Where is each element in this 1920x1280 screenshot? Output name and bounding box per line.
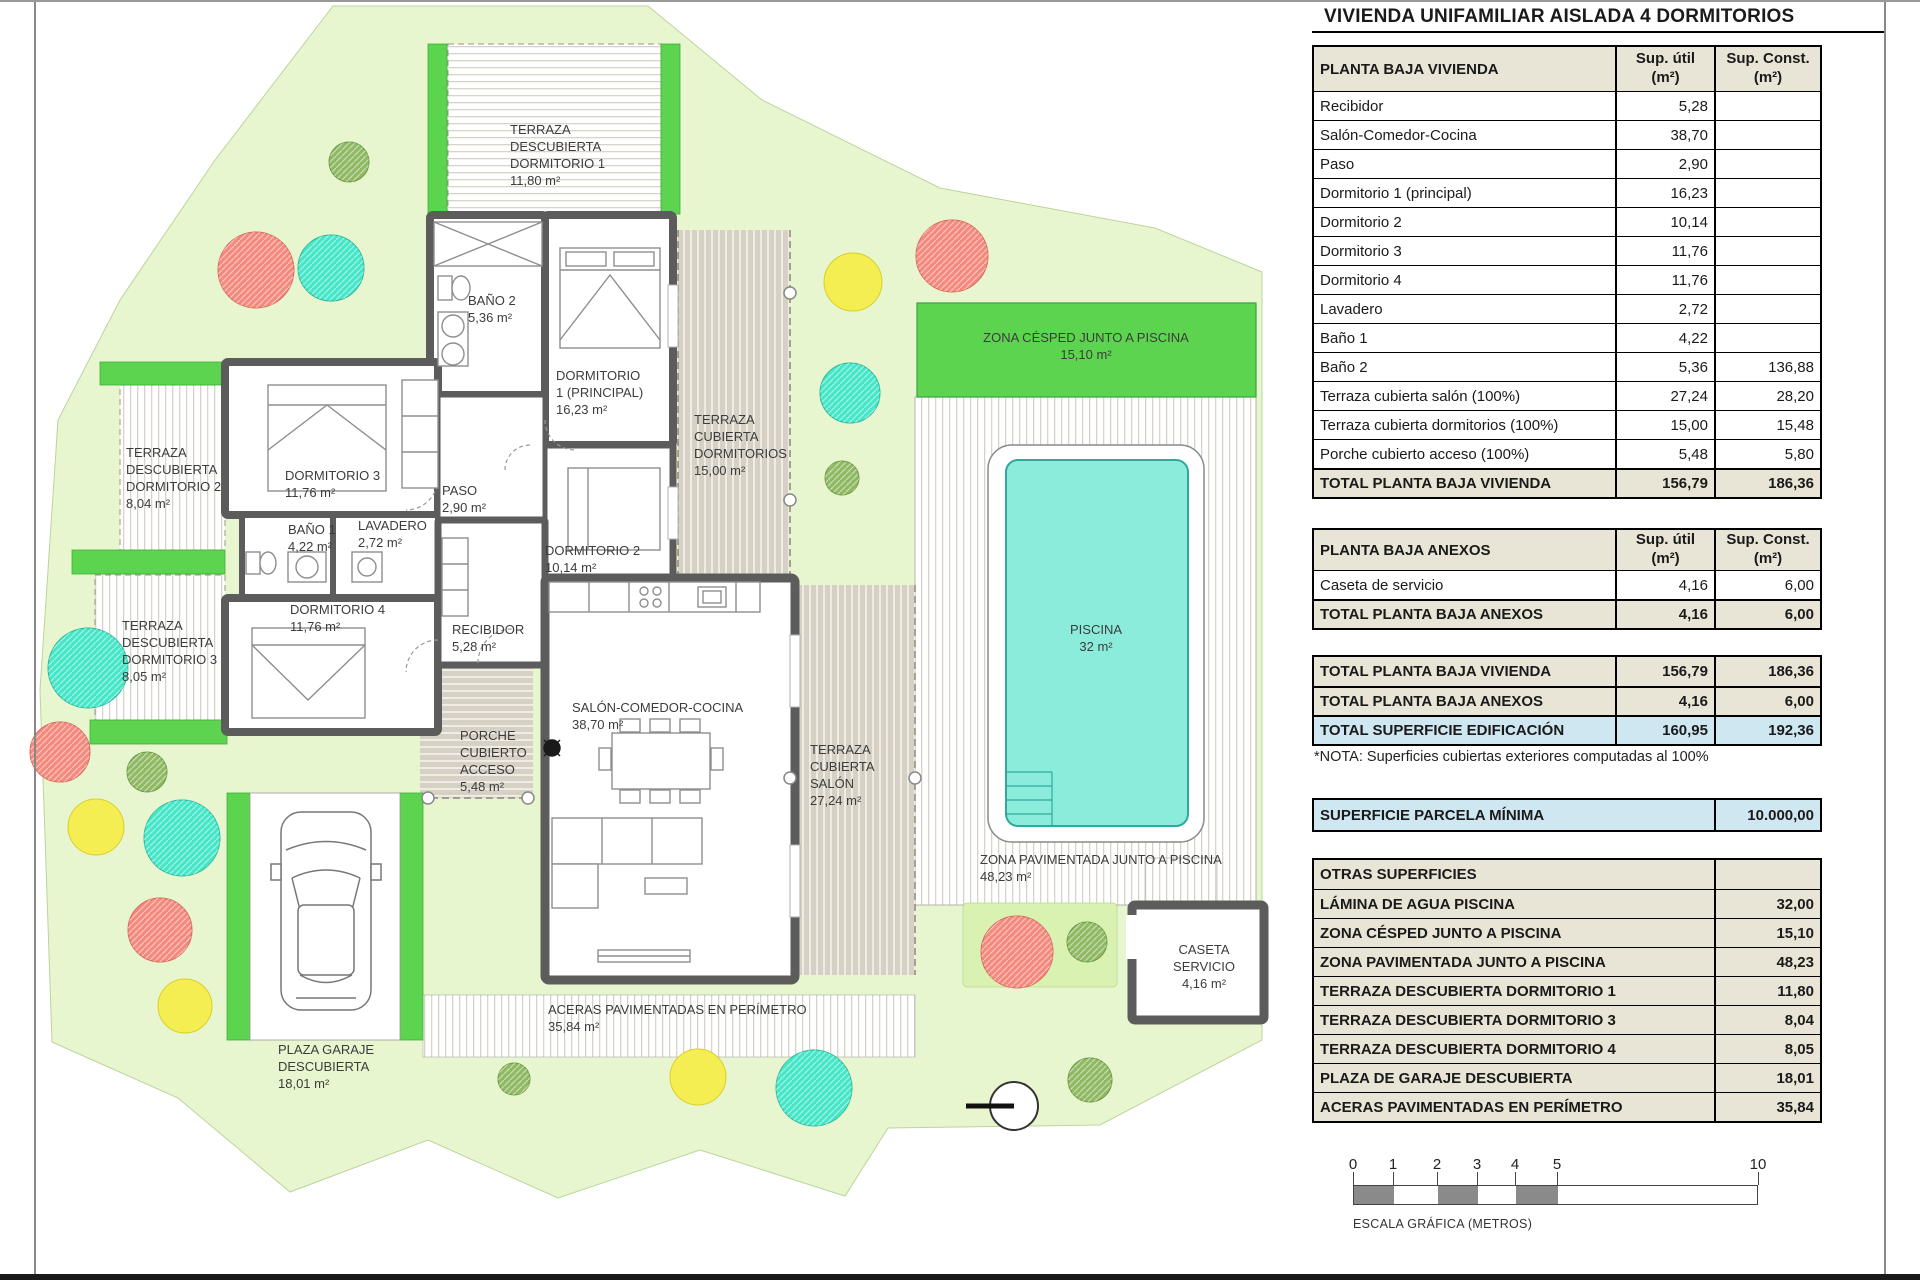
tree-olive-icon bbox=[1068, 1058, 1112, 1102]
table-row: Paso2,90 bbox=[1314, 149, 1820, 178]
table-header-row: PLANTA BAJA ANEXOS Sup. útil(m²) Sup. Co… bbox=[1314, 530, 1820, 570]
label-bano1: BAÑO 14,22 m² bbox=[288, 522, 336, 556]
table-row: SUPERFICIE PARCELA MÍNIMA 10.000,00 bbox=[1314, 800, 1820, 830]
tree-salmon-icon bbox=[128, 898, 192, 962]
table-total-row: TOTAL PLANTA BAJA VIVIENDA156,79186,36 bbox=[1314, 468, 1820, 497]
table-parcela-minima: SUPERFICIE PARCELA MÍNIMA 10.000,00 bbox=[1312, 798, 1822, 832]
label-terraza-dorm2: TERRAZADESCUBIERTADORMITORIO 28,04 m² bbox=[126, 445, 221, 513]
scale-caption: ESCALA GRÁFICA (METROS) bbox=[1353, 1217, 1532, 1231]
tree-olive-icon bbox=[498, 1063, 530, 1095]
scale-tick: 2 bbox=[1422, 1156, 1452, 1173]
scale-bar-segments bbox=[1353, 1185, 1758, 1205]
tree-salmon-icon bbox=[981, 916, 1053, 988]
wardrobe bbox=[402, 380, 438, 488]
table-row: ZONA CÉSPED JUNTO A PISCINA15,10 bbox=[1314, 918, 1820, 947]
label-piscina: PISCINA32 m² bbox=[1026, 622, 1166, 656]
tree-yellow-icon bbox=[670, 1049, 726, 1105]
footnote: *NOTA: Superficies cubiertas exteriores … bbox=[1314, 749, 1709, 765]
tree-salmon-icon bbox=[916, 220, 988, 292]
tree-salmon-icon bbox=[30, 722, 90, 782]
table-row: Salón-Comedor-Cocina38,70 bbox=[1314, 120, 1820, 149]
table-total-row: TOTAL PLANTA BAJA VIVIENDA156,79186,36 bbox=[1314, 657, 1820, 686]
label-zona-pavimentada: ZONA PAVIMENTADA JUNTO A PISCINA48,23 m² bbox=[980, 852, 1222, 886]
scale-tick: 5 bbox=[1542, 1156, 1572, 1173]
label-aceras: ACERAS PAVIMENTADAS EN PERÍMETRO35,84 m² bbox=[548, 1002, 807, 1036]
table-total-row: TOTAL PLANTA BAJA ANEXOS4,166,00 bbox=[1314, 599, 1820, 628]
architectural-sheet: TERRAZADESCUBIERTADORMITORIO 111,80 m² T… bbox=[0, 0, 1920, 1280]
table-row: TERRAZA DESCUBIERTA DORMITORIO 111,80 bbox=[1314, 976, 1820, 1005]
tree-olive-icon bbox=[1067, 922, 1107, 962]
closet bbox=[442, 538, 468, 616]
tree-salmon-icon bbox=[218, 232, 294, 308]
wardrobe bbox=[434, 222, 542, 266]
table-header-row: OTRAS SUPERFICIES bbox=[1314, 860, 1820, 889]
table-row: Dormitorio 311,76 bbox=[1314, 236, 1820, 265]
table-row: ACERAS PAVIMENTADAS EN PERÍMETRO35,84 bbox=[1314, 1092, 1820, 1121]
label-recibidor: RECIBIDOR5,28 m² bbox=[452, 622, 524, 656]
table-row: Dormitorio 1 (principal)16,23 bbox=[1314, 178, 1820, 207]
table-otras-superficies: OTRAS SUPERFICIES LÁMINA DE AGUA PISCINA… bbox=[1312, 858, 1822, 1123]
tree-teal-icon bbox=[820, 363, 880, 423]
tree-teal-icon bbox=[144, 800, 220, 876]
label-dorm1: DORMITORIO1 (PRINCIPAL)16,23 m² bbox=[556, 368, 643, 419]
tree-yellow-icon bbox=[824, 253, 882, 311]
table-resumen: TOTAL PLANTA BAJA VIVIENDA156,79186,36 T… bbox=[1312, 655, 1822, 746]
tree-yellow-icon bbox=[158, 979, 212, 1033]
label-zona-cesped: ZONA CÉSPED JUNTO A PISCINA15,10 m² bbox=[956, 330, 1216, 364]
table-row: PLAZA DE GARAJE DESCUBIERTA18,01 bbox=[1314, 1063, 1820, 1092]
label-bano2: BAÑO 25,36 m² bbox=[468, 293, 516, 327]
label-dorm2: DORMITORIO 210,14 m² bbox=[545, 543, 640, 577]
table-row: Terraza cubierta dormitorios (100%)15,00… bbox=[1314, 410, 1820, 439]
label-salon: SALÓN-COMEDOR-COCINA38,70 m² bbox=[572, 700, 743, 734]
tree-olive-icon bbox=[127, 752, 167, 792]
car-icon bbox=[271, 812, 381, 1010]
table-row: Dormitorio 210,14 bbox=[1314, 207, 1820, 236]
tree-olive-icon bbox=[329, 142, 369, 182]
tv-console bbox=[598, 950, 690, 962]
table-row: Baño 25,36136,88 bbox=[1314, 352, 1820, 381]
scale-tick: 0 bbox=[1338, 1156, 1368, 1173]
label-dorm4: DORMITORIO 411,76 m² bbox=[290, 602, 385, 636]
label-paso: PASO2,90 m² bbox=[442, 483, 486, 517]
bed-dorm2 bbox=[568, 468, 660, 550]
label-lavadero: LAVADERO2,72 m² bbox=[358, 518, 427, 552]
table-row: Porche cubierto acceso (100%)5,485,80 bbox=[1314, 439, 1820, 468]
label-terraza-dorm3: TERRAZADESCUBIERTADORMITORIO 38,05 m² bbox=[122, 618, 217, 686]
table-planta-baja-vivienda: PLANTA BAJA VIVIENDA Sup. útil(m²) Sup. … bbox=[1312, 45, 1822, 499]
table-row: Dormitorio 411,76 bbox=[1314, 265, 1820, 294]
table-row: LÁMINA DE AGUA PISCINA32,00 bbox=[1314, 889, 1820, 918]
table-row: TERRAZA DESCUBIERTA DORMITORIO 38,04 bbox=[1314, 1005, 1820, 1034]
table-row: TERRAZA DESCUBIERTA DORMITORIO 48,05 bbox=[1314, 1034, 1820, 1063]
tree-teal-icon bbox=[776, 1050, 852, 1126]
scale-tick: 3 bbox=[1462, 1156, 1492, 1173]
table-header-row: PLANTA BAJA VIVIENDA Sup. útil(m²) Sup. … bbox=[1314, 47, 1820, 91]
page-title: VIVIENDA UNIFAMILIAR AISLADA 4 DORMITORI… bbox=[1312, 2, 1884, 33]
table-row: Recibidor5,28 bbox=[1314, 91, 1820, 120]
kitchen-counter bbox=[549, 582, 760, 612]
table-row: ZONA PAVIMENTADA JUNTO A PISCINA48,23 bbox=[1314, 947, 1820, 976]
label-terraza-cubierta-dorms: TERRAZACUBIERTADORMITORIOS15,00 m² bbox=[694, 412, 787, 480]
table-row: Terraza cubierta salón (100%)27,2428,20 bbox=[1314, 381, 1820, 410]
bath2-fixtures bbox=[438, 276, 470, 366]
label-terraza-cubierta-salon: TERRAZACUBIERTASALÓN27,24 m² bbox=[810, 742, 875, 810]
table-row: Caseta de servicio4,166,00 bbox=[1314, 570, 1820, 599]
plant-icon bbox=[544, 740, 560, 756]
covered-terrace-dorms bbox=[678, 230, 790, 585]
label-dorm3: DORMITORIO 311,76 m² bbox=[285, 468, 380, 502]
table-total-row: TOTAL PLANTA BAJA ANEXOS4,166,00 bbox=[1314, 686, 1820, 715]
scale-tick: 1 bbox=[1378, 1156, 1408, 1173]
washer bbox=[352, 552, 382, 582]
bed-dorm4 bbox=[252, 628, 365, 718]
table-row: Lavadero2,72 bbox=[1314, 294, 1820, 323]
label-porche: PORCHECUBIERTOACCESO5,48 m² bbox=[460, 728, 527, 796]
tree-teal-icon bbox=[298, 235, 364, 301]
label-plaza-garaje: PLAZA GARAJEDESCUBIERTA18,01 m² bbox=[278, 1042, 374, 1093]
table-grand-total-row: TOTAL SUPERFICIE EDIFICACIÓN160,95192,36 bbox=[1314, 715, 1820, 744]
table-row: Baño 14,22 bbox=[1314, 323, 1820, 352]
table-planta-baja-anexos: PLANTA BAJA ANEXOS Sup. útil(m²) Sup. Co… bbox=[1312, 528, 1822, 630]
bed-dorm1 bbox=[560, 248, 660, 348]
tree-yellow-icon bbox=[68, 799, 124, 855]
tree-teal-icon bbox=[48, 628, 128, 708]
scale-tick: 10 bbox=[1743, 1156, 1773, 1173]
tree-olive-icon bbox=[825, 461, 859, 495]
label-terraza-dorm1: TERRAZADESCUBIERTADORMITORIO 111,80 m² bbox=[510, 122, 605, 190]
scale-tick: 4 bbox=[1500, 1156, 1530, 1173]
label-caseta: CASETASERVICIO4,16 m² bbox=[1144, 942, 1264, 993]
